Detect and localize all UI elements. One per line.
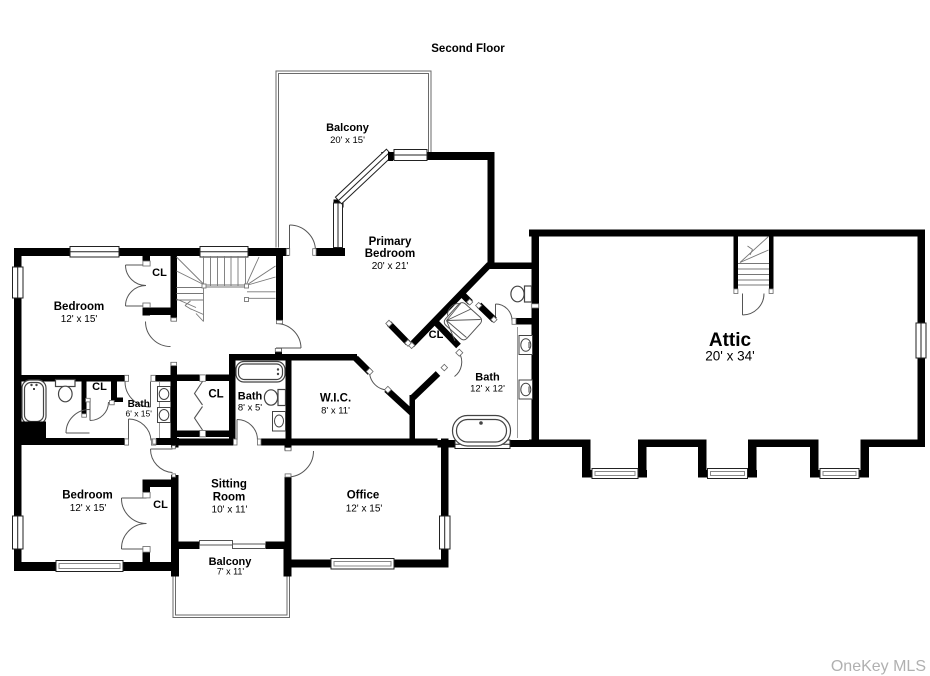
svg-text:W.I.C.: W.I.C. <box>320 393 351 405</box>
svg-text:6' x 15': 6' x 15' <box>125 409 152 419</box>
svg-text:8' x 11': 8' x 11' <box>321 406 350 417</box>
svg-text:20' x 34': 20' x 34' <box>705 349 754 364</box>
svg-text:CL: CL <box>92 381 107 393</box>
svg-text:Sitting: Sitting <box>211 479 247 491</box>
svg-text:12' x 15': 12' x 15' <box>61 314 98 325</box>
svg-text:Bedroom: Bedroom <box>365 248 415 260</box>
svg-text:Room: Room <box>213 492 246 504</box>
svg-text:Second Floor: Second Floor <box>431 43 505 55</box>
svg-text:Balcony: Balcony <box>326 122 370 134</box>
svg-text:Primary: Primary <box>369 236 412 248</box>
svg-text:Bath: Bath <box>475 372 500 384</box>
svg-text:12' x 12': 12' x 12' <box>470 384 505 395</box>
svg-text:Bath: Bath <box>238 391 263 403</box>
svg-text:CL: CL <box>208 389 223 401</box>
svg-text:10' x 11': 10' x 11' <box>212 505 248 516</box>
svg-text:12' x 15': 12' x 15' <box>70 503 107 514</box>
svg-text:Bedroom: Bedroom <box>62 490 112 502</box>
svg-text:12' x 15': 12' x 15' <box>346 504 383 515</box>
svg-text:OneKey MLS: OneKey MLS <box>831 658 926 675</box>
svg-text:CL: CL <box>153 499 168 511</box>
svg-text:CL: CL <box>152 267 167 279</box>
svg-text:20' x 21': 20' x 21' <box>372 261 409 272</box>
svg-text:7' x 11': 7' x 11' <box>217 567 245 577</box>
svg-text:20' x 15': 20' x 15' <box>330 135 365 146</box>
svg-text:Office: Office <box>347 490 380 502</box>
svg-text:8' x 5': 8' x 5' <box>238 403 262 414</box>
svg-text:CL: CL <box>429 329 444 341</box>
svg-text:Bedroom: Bedroom <box>54 301 104 313</box>
